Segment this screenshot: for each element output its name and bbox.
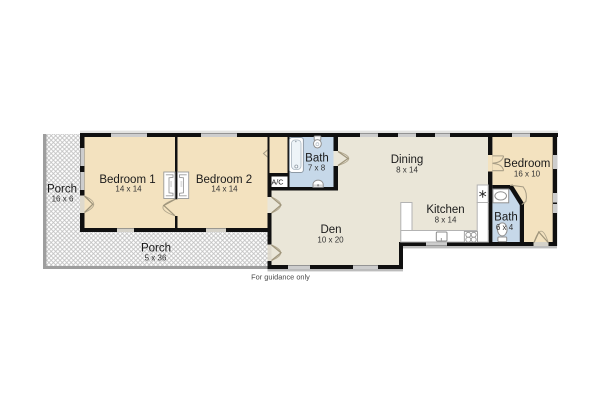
svg-text:8 x 14: 8 x 14 <box>396 166 418 175</box>
svg-text:Dining: Dining <box>391 154 424 166</box>
svg-text:10 x 20: 10 x 20 <box>317 236 344 245</box>
svg-text:14 x 14: 14 x 14 <box>115 185 142 194</box>
svg-text:5 x 36: 5 x 36 <box>145 254 167 263</box>
svg-text:7 x 8: 7 x 8 <box>308 164 326 173</box>
svg-text:A/C: A/C <box>272 177 284 186</box>
svg-text:Den: Den <box>320 224 341 236</box>
svg-text:16 x 10: 16 x 10 <box>514 170 541 179</box>
svg-text:6 x 4: 6 x 4 <box>496 223 514 232</box>
svg-text:16 x 6: 16 x 6 <box>52 195 74 204</box>
svg-text:Bath: Bath <box>494 212 518 224</box>
svg-text:For guidance only: For guidance only <box>251 272 310 281</box>
svg-text:14 x 14: 14 x 14 <box>211 185 238 194</box>
svg-text:Bath: Bath <box>305 153 329 165</box>
svg-text:8 x 14: 8 x 14 <box>435 216 457 225</box>
svg-text:Kitchen: Kitchen <box>426 204 464 216</box>
svg-text:Bedroom: Bedroom <box>504 158 551 170</box>
